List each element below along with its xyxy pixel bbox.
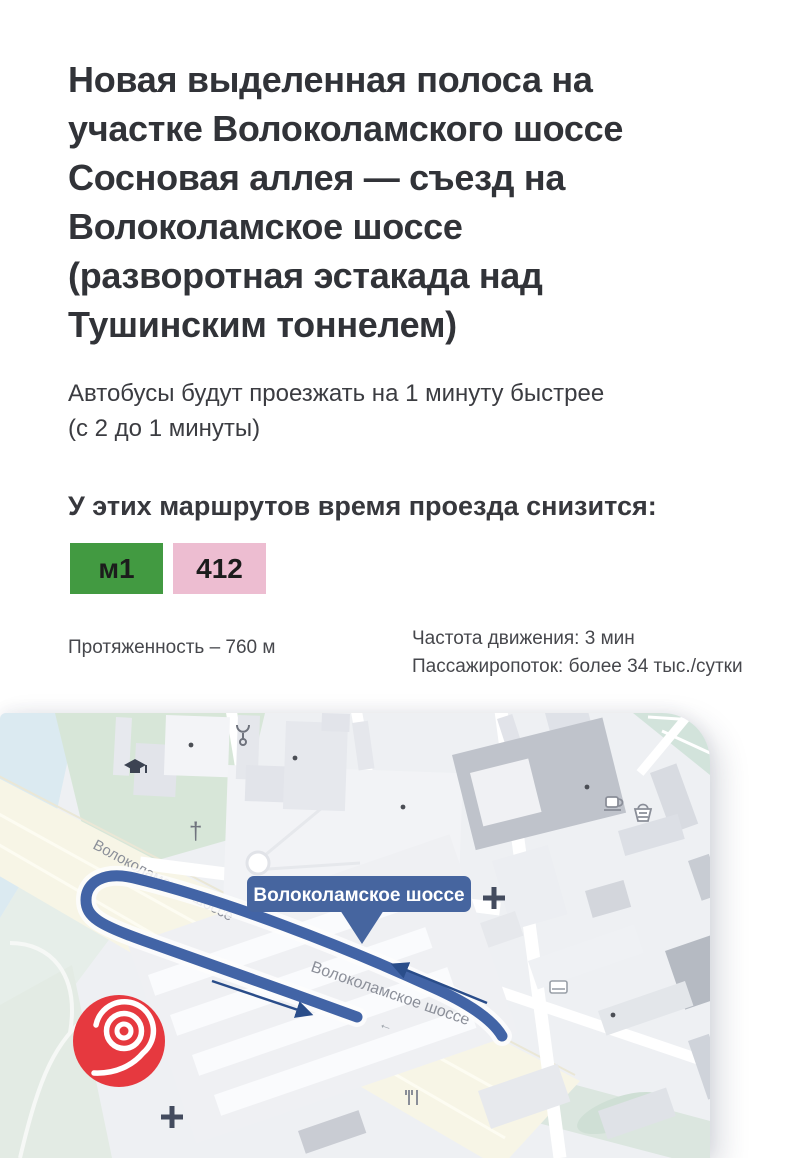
title-line: (разворотная эстакада над <box>68 251 708 300</box>
page-title: Новая выделенная полоса на участке Волок… <box>68 55 708 349</box>
stat-passenger-flow: Пассажиропоток: более 34 тыс./сутки <box>412 653 743 681</box>
stat-block: Частота движения: 3 мин Пассажиропоток: … <box>412 625 743 681</box>
church-cross-icon: † <box>189 818 202 845</box>
title-line: Новая выделенная полоса на <box>68 55 708 104</box>
stat-length: Протяженность – 760 м <box>68 634 275 662</box>
title-line: Волоколамское шоссе <box>68 202 708 251</box>
route-badge-412: 412 <box>173 543 266 594</box>
route-badge-m1: м1 <box>70 543 163 594</box>
map-card: † <box>0 713 710 1158</box>
routes-heading: У этих маршрутов время проезда снизится: <box>68 489 728 523</box>
street-label-text: Волоколамское шоссе <box>253 885 464 906</box>
stat-frequency: Частота движения: 3 мин <box>412 625 743 653</box>
subtitle-line: (с 2 до 1 минуты) <box>68 411 708 446</box>
title-line: Тушинским тоннелем) <box>68 300 708 349</box>
route-badges: м1 412 <box>70 543 266 594</box>
title-line: Сосновая аллея — съезд на <box>68 153 708 202</box>
map-svg: † <box>0 713 710 1158</box>
subtitle: Автобусы будут проезжать на 1 минуту быс… <box>68 376 708 446</box>
title-line: участке Волоколамского шоссе <box>68 104 708 153</box>
moscow-transport-logo-icon <box>73 995 165 1087</box>
subtitle-line: Автобусы будут проезжать на 1 минуту быс… <box>68 376 708 411</box>
hotel-bed-icon <box>550 981 567 993</box>
infographic: Новая выделенная полоса на участке Волок… <box>0 0 800 1158</box>
